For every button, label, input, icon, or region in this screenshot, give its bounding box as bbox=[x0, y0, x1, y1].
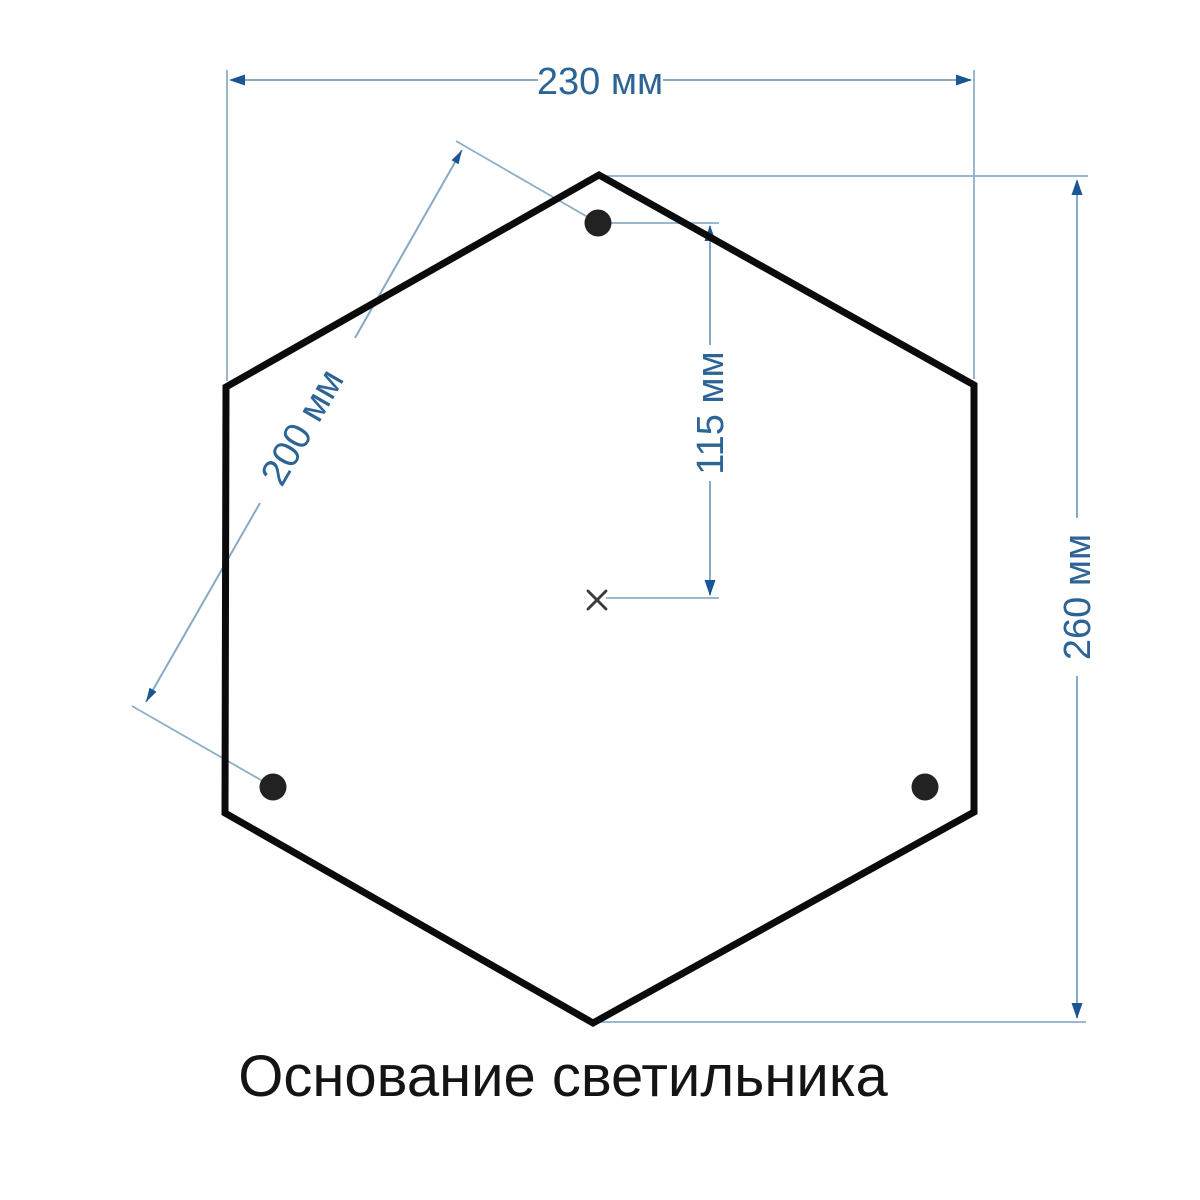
mounting-hole-bottom-right bbox=[912, 774, 939, 801]
dimension-line-segment bbox=[355, 150, 462, 338]
extension-line-top-hole bbox=[456, 141, 598, 223]
extension-line-bottom-hole bbox=[132, 706, 273, 787]
mounting-hole-top bbox=[585, 210, 612, 237]
dimension-hole-spacing-200: 200 мм bbox=[132, 141, 598, 787]
dimension-height-260: 260 мм bbox=[601, 176, 1099, 1022]
dimension-label-hole-offset: 115 мм bbox=[690, 351, 732, 474]
arrowhead-up-icon bbox=[1072, 179, 1083, 195]
arrowhead-down-icon bbox=[1072, 1003, 1083, 1019]
arrowhead-left-icon bbox=[229, 75, 245, 86]
mounting-hole-bottom-left bbox=[260, 774, 287, 801]
center-mark bbox=[588, 591, 606, 609]
dimension-line-segment bbox=[146, 503, 260, 702]
arrowhead-right-icon bbox=[956, 75, 972, 86]
dimension-label-hole-spacing: 200 мм bbox=[253, 362, 352, 492]
lamp-base-drawing: 230 мм 200 мм 115 мм bbox=[0, 0, 1200, 1200]
technical-drawing-page: 230 мм 200 мм 115 мм bbox=[0, 0, 1200, 1200]
arrowhead-upper-icon bbox=[452, 150, 463, 164]
dimension-label-width: 230 мм bbox=[537, 61, 663, 103]
arrowhead-down-icon bbox=[705, 580, 716, 596]
arrowhead-lower-icon bbox=[146, 688, 157, 702]
dimension-label-height: 260 мм bbox=[1057, 534, 1099, 660]
drawing-caption: Основание светильника bbox=[238, 1044, 888, 1109]
dimension-hole-offset-115: 115 мм bbox=[601, 223, 732, 598]
